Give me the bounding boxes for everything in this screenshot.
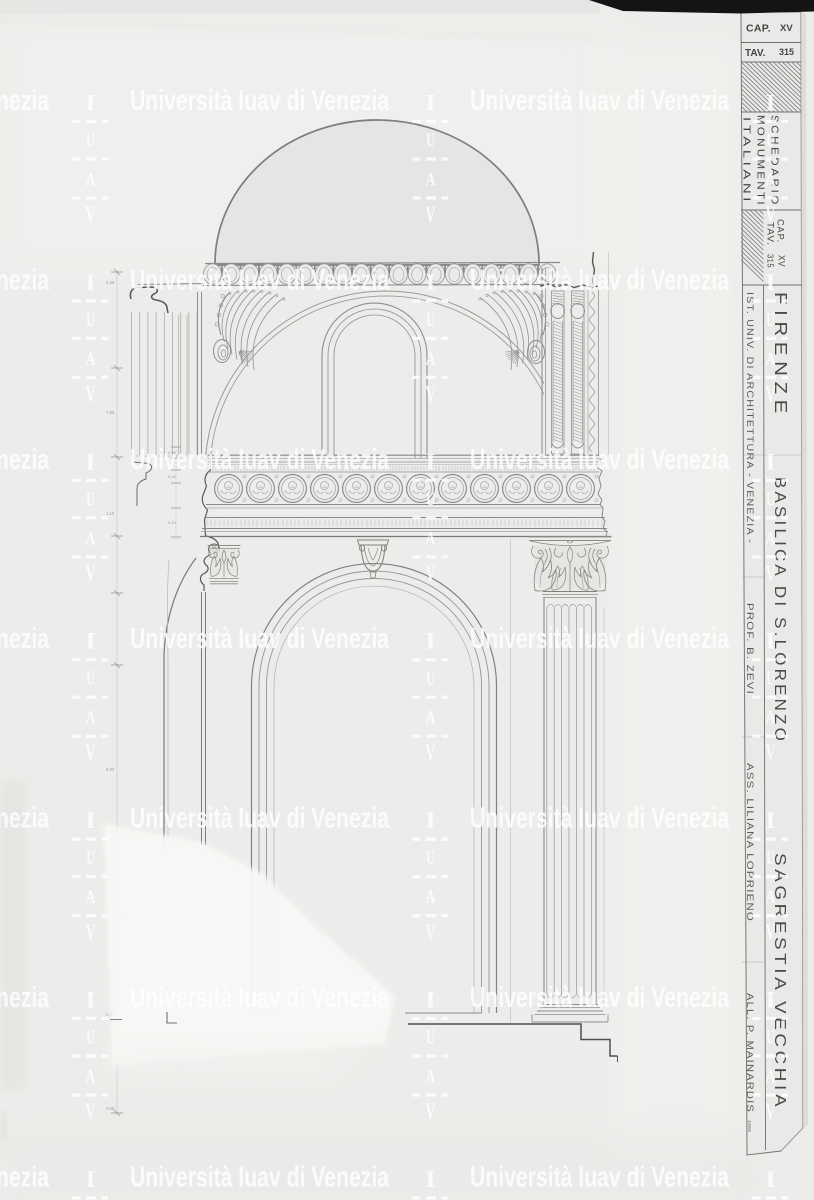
svg-text:Università Iuav di Venezia: Università Iuav di Venezia <box>130 85 390 117</box>
svg-text:I: I <box>766 808 776 833</box>
svg-text:U: U <box>86 1028 95 1049</box>
svg-text:MONUMENTI: MONUMENTI <box>755 115 767 207</box>
svg-text:U: U <box>426 131 435 152</box>
svg-text:U: U <box>766 310 775 331</box>
svg-text:PROF. B. ZEVI: PROF. B. ZEVI <box>745 603 755 695</box>
svg-text:V: V <box>86 920 96 945</box>
svg-text:A: A <box>426 529 436 549</box>
svg-text:A: A <box>426 350 436 370</box>
svg-text:A: A <box>766 350 776 370</box>
svg-text:Università Iuav di Venezia: Università Iuav di Venezia <box>470 982 730 1014</box>
svg-text:V: V <box>766 381 776 406</box>
svg-text:A: A <box>426 171 436 191</box>
svg-text:U: U <box>426 848 435 869</box>
svg-text:Università Iuav di Venezia: Università Iuav di Venezia <box>130 1161 390 1193</box>
svg-text:V: V <box>86 202 96 227</box>
svg-text:I: I <box>426 449 436 474</box>
svg-text:Università Iuav di Venezia: Università Iuav di Venezia <box>0 444 50 476</box>
svg-text:Università Iuav di Venezia: Università Iuav di Venezia <box>470 623 730 655</box>
svg-text:A: A <box>766 1068 776 1088</box>
svg-text:TAV.: TAV. <box>745 48 766 59</box>
svg-text:I: I <box>766 91 776 116</box>
svg-text:A: A <box>426 709 436 729</box>
svg-text:V: V <box>766 202 776 227</box>
svg-text:315: 315 <box>766 254 775 268</box>
svg-text:V: V <box>426 202 436 227</box>
svg-text:Università Iuav di Venezia: Università Iuav di Venezia <box>470 264 730 296</box>
svg-text:0.00: 0.00 <box>106 1106 115 1111</box>
svg-text:Università Iuav di Venezia: Università Iuav di Venezia <box>470 1161 730 1193</box>
svg-text:A: A <box>426 888 436 908</box>
svg-text:SCHEDARIO: SCHEDARIO <box>769 115 781 207</box>
svg-text:1955: 1955 <box>747 1120 752 1133</box>
svg-text:Università Iuav di Venezia: Università Iuav di Venezia <box>130 803 390 835</box>
svg-text:V: V <box>766 920 776 945</box>
svg-text:CAP.: CAP. <box>746 23 771 35</box>
svg-text:Università Iuav di Venezia: Università Iuav di Venezia <box>130 264 390 296</box>
svg-text:I: I <box>426 808 436 833</box>
svg-text:A: A <box>86 888 96 908</box>
svg-text:Università Iuav di Venezia: Università Iuav di Venezia <box>130 623 390 655</box>
svg-text:IST. UNIV. DI ARCHITETTURA - V: IST. UNIV. DI ARCHITETTURA - VENEZIA - <box>745 292 755 544</box>
svg-text:V: V <box>86 561 96 586</box>
svg-text:Università Iuav di Venezia: Università Iuav di Venezia <box>130 444 390 476</box>
svg-text:V: V <box>426 561 436 586</box>
svg-text:Università Iuav di Venezia: Università Iuav di Venezia <box>130 982 390 1014</box>
svg-text:U: U <box>86 669 95 690</box>
svg-text:Università Iuav di Venezia: Università Iuav di Venezia <box>470 803 730 835</box>
svg-text:U: U <box>426 669 435 690</box>
svg-text:I: I <box>766 1167 776 1192</box>
svg-text:I: I <box>426 270 436 295</box>
svg-text:V: V <box>426 920 436 945</box>
svg-text:V: V <box>766 1099 776 1124</box>
svg-text:V: V <box>86 1099 96 1124</box>
svg-text:U: U <box>426 1028 435 1049</box>
svg-text:I: I <box>86 91 96 116</box>
svg-text:315: 315 <box>779 47 794 57</box>
svg-text:I: I <box>766 270 776 295</box>
svg-text:U: U <box>766 1028 775 1049</box>
svg-text:Università Iuav di Venezia: Università Iuav di Venezia <box>0 803 50 835</box>
svg-text:I: I <box>86 270 96 295</box>
svg-text:I: I <box>766 629 776 654</box>
svg-text:V: V <box>426 1099 436 1124</box>
svg-text:Università Iuav di Venezia: Università Iuav di Venezia <box>470 444 730 476</box>
svg-text:U: U <box>86 848 95 869</box>
svg-text:Università Iuav di Venezia: Università Iuav di Venezia <box>0 982 50 1014</box>
svg-text:A: A <box>766 529 776 549</box>
svg-text:I: I <box>86 808 96 833</box>
svg-text:Università Iuav di Venezia: Università Iuav di Venezia <box>0 85 50 117</box>
svg-text:U: U <box>766 669 775 690</box>
svg-text:I: I <box>766 988 776 1013</box>
svg-text:A: A <box>766 888 776 908</box>
svg-text:U: U <box>86 131 95 152</box>
svg-text:1.10: 1.10 <box>106 511 115 516</box>
svg-text:4.36: 4.36 <box>106 280 115 285</box>
svg-text:U: U <box>426 310 435 331</box>
svg-text:I: I <box>426 629 436 654</box>
svg-text:V: V <box>766 740 776 765</box>
svg-text:Università Iuav di Venezia: Università Iuav di Venezia <box>0 623 50 655</box>
svg-text:A: A <box>86 171 96 191</box>
svg-text:I: I <box>86 988 96 1013</box>
svg-text:7.80: 7.80 <box>106 410 115 415</box>
svg-text:U: U <box>766 489 775 510</box>
svg-text:Università Iuav di Venezia: Università Iuav di Venezia <box>0 1161 50 1193</box>
svg-text:XV: XV <box>780 23 793 34</box>
svg-text:U: U <box>86 310 95 331</box>
svg-text:A: A <box>766 171 776 191</box>
svg-text:I: I <box>426 91 436 116</box>
svg-text:ITALIANI: ITALIANI <box>741 117 753 205</box>
svg-text:ASS. LILIANA LOPRIENO: ASS. LILIANA LOPRIENO <box>745 763 755 922</box>
svg-text:V: V <box>86 381 96 406</box>
svg-text:U: U <box>86 489 95 510</box>
svg-text:I: I <box>86 629 96 654</box>
svg-text:I: I <box>766 449 776 474</box>
svg-text:A: A <box>766 709 776 729</box>
svg-text:U: U <box>766 848 775 869</box>
svg-text:I: I <box>426 988 436 1013</box>
svg-text:A: A <box>86 709 96 729</box>
svg-text:A: A <box>86 350 96 370</box>
svg-text:I: I <box>86 449 96 474</box>
svg-text:A: A <box>86 1068 96 1088</box>
svg-text:Università Iuav di Venezia: Università Iuav di Venezia <box>470 85 730 117</box>
svg-text:5.02: 5.02 <box>106 767 115 772</box>
svg-text:0.10: 0.10 <box>168 520 177 525</box>
svg-text:V: V <box>426 740 436 765</box>
svg-text:U: U <box>766 131 775 152</box>
svg-text:XV: XV <box>777 255 787 267</box>
svg-text:A: A <box>86 529 96 549</box>
svg-text:V: V <box>766 561 776 586</box>
svg-text:I: I <box>86 1167 96 1192</box>
svg-text:U: U <box>426 489 435 510</box>
svg-text:A: A <box>426 1068 436 1088</box>
svg-text:Università Iuav di Venezia: Università Iuav di Venezia <box>0 264 50 296</box>
svg-text:V: V <box>86 740 96 765</box>
svg-text:V: V <box>426 381 436 406</box>
svg-text:I: I <box>426 1167 436 1192</box>
